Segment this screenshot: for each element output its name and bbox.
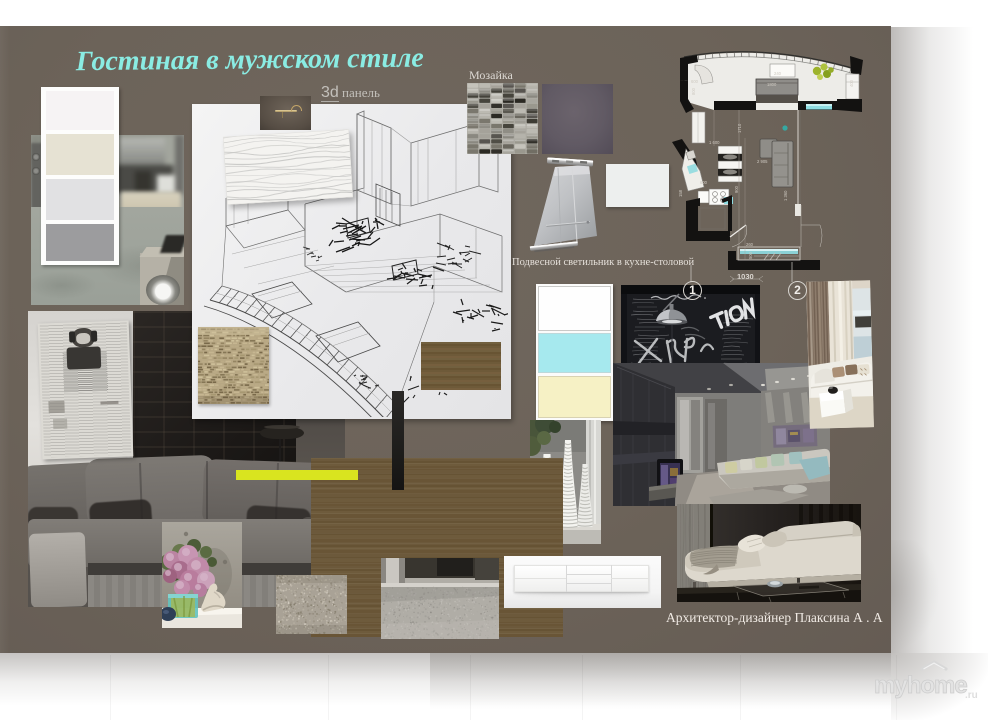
- svg-text:600: 600: [700, 180, 708, 185]
- svg-text:1 360: 1 360: [783, 190, 788, 201]
- svg-text:260: 260: [746, 242, 754, 247]
- svg-text:500: 500: [748, 251, 753, 259]
- svg-text:600: 600: [691, 79, 699, 84]
- svg-text:1800: 1800: [767, 82, 777, 87]
- svg-text:800: 800: [691, 87, 696, 95]
- svg-text:2 905: 2 905: [757, 159, 768, 164]
- svg-text:1 600: 1 600: [709, 140, 720, 145]
- svg-text:400: 400: [849, 79, 854, 87]
- svg-text:myhome: myhome: [874, 672, 967, 699]
- svg-text:240: 240: [774, 71, 782, 76]
- svg-text:1710: 1710: [737, 123, 742, 133]
- svg-text:158: 158: [678, 189, 683, 197]
- svg-text:900: 900: [734, 185, 739, 193]
- svg-text:1030: 1030: [737, 272, 754, 281]
- svg-text:.ru: .ru: [965, 690, 978, 701]
